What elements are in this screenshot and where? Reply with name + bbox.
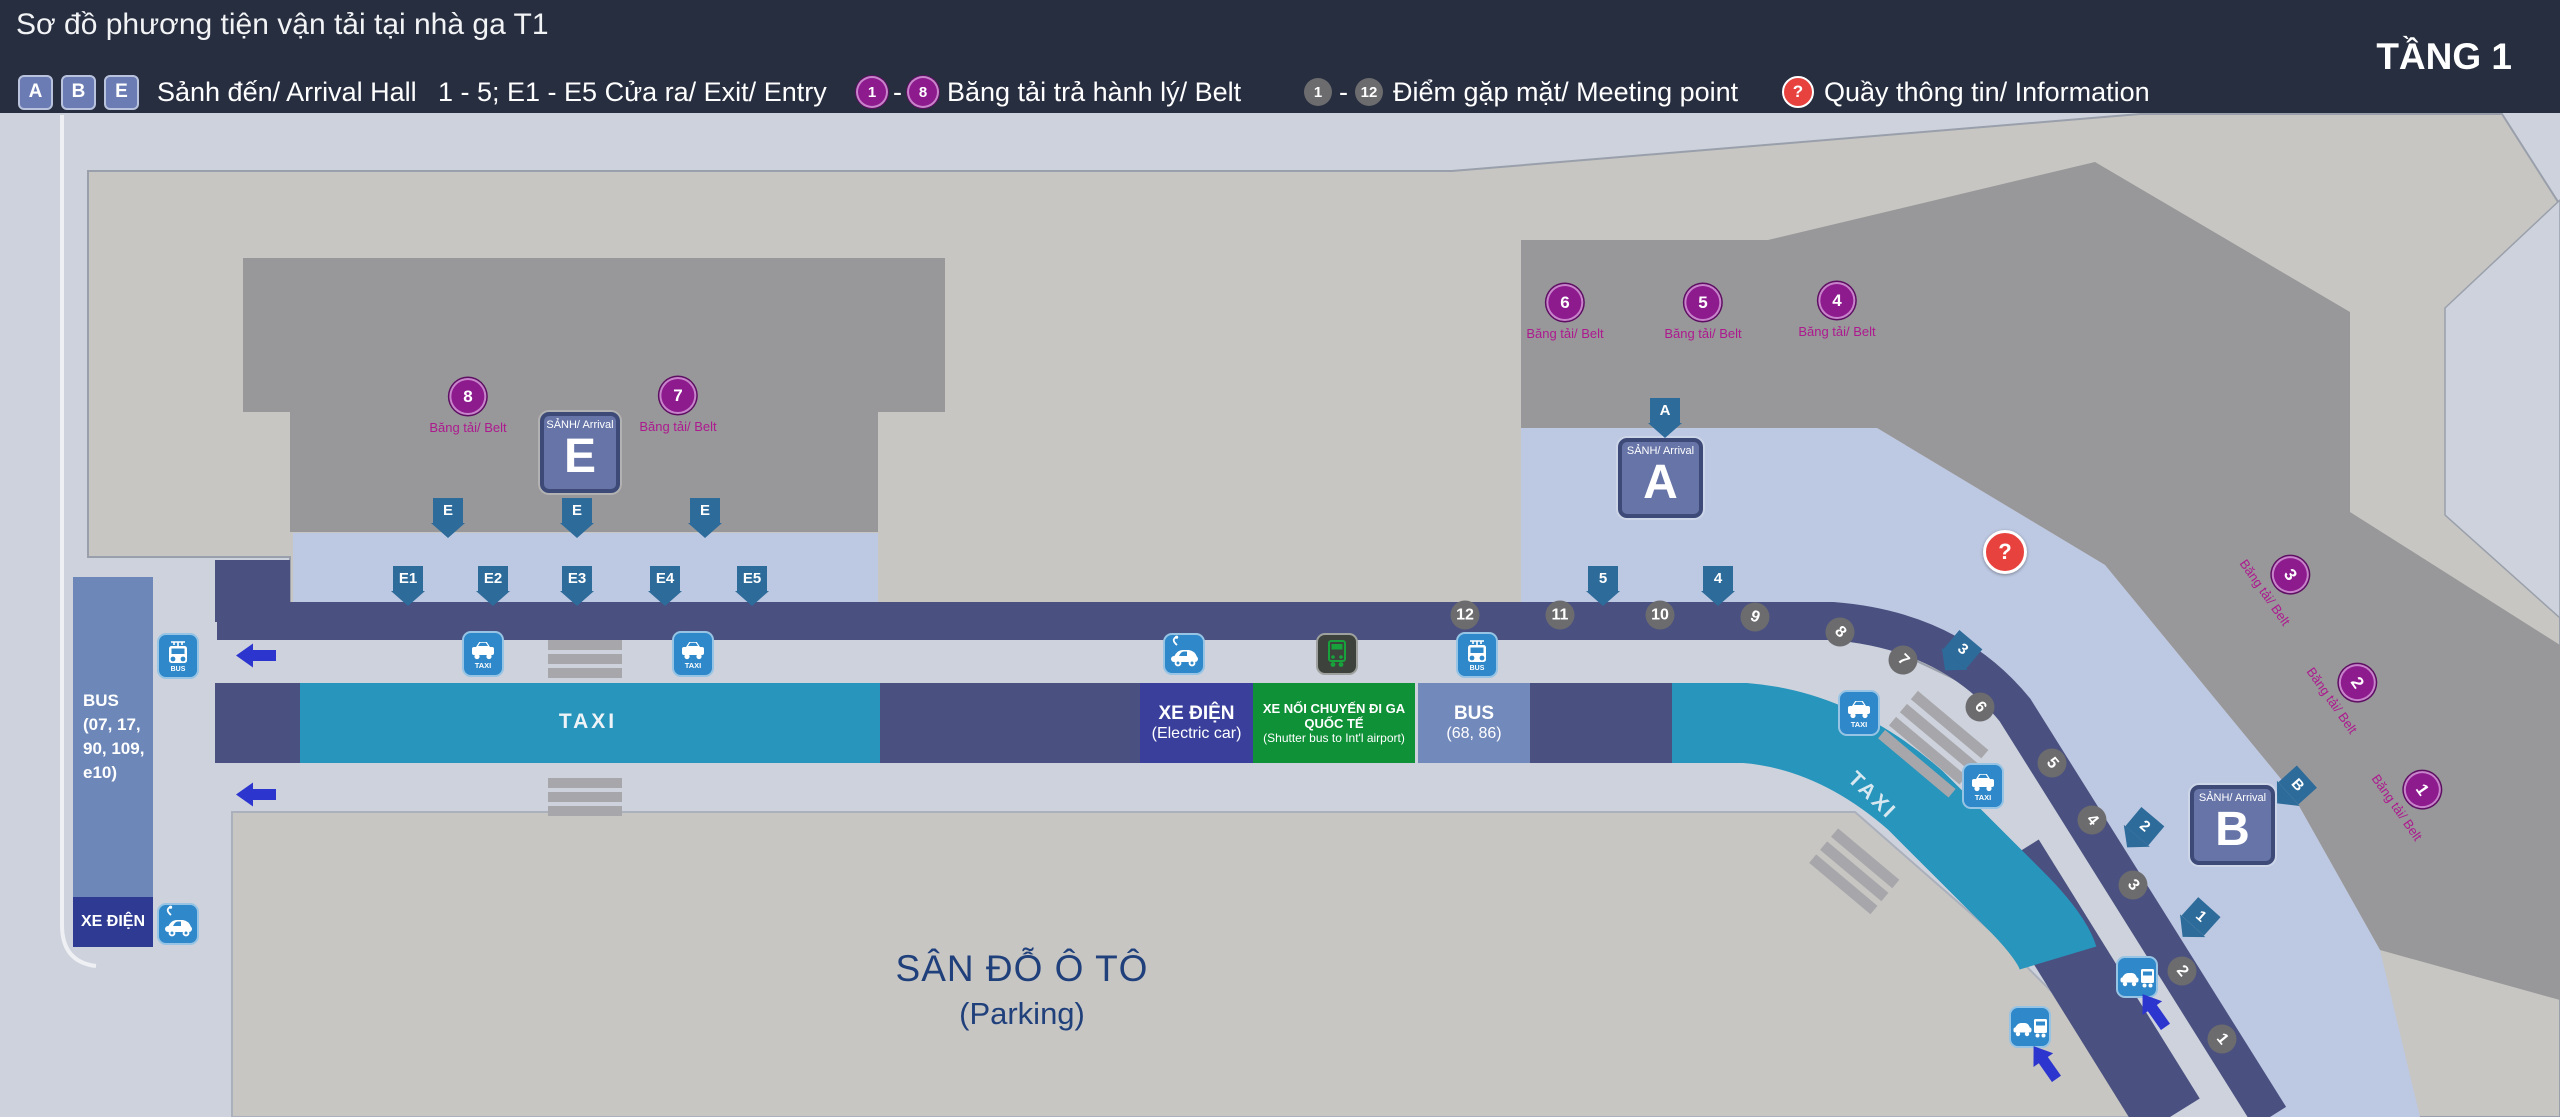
arrival-hall-box-e: SẢNH/ Arrival E [540, 412, 620, 493]
electric-car-stop-subtitle: (Electric car) [1152, 725, 1242, 743]
hall-badge-b: B [61, 75, 96, 110]
meeting-point-10: 10 [1646, 601, 1675, 630]
direction-arrow [236, 782, 276, 813]
meeting-point-number: 12 [1456, 606, 1474, 624]
exit-arrow-e: E [560, 498, 594, 538]
legend-belts: 1 - 8 Băng tải trả hành lý/ Belt [858, 73, 1241, 111]
meeting-point-3: 3 [2119, 871, 2148, 900]
electric-car-icon [1165, 635, 1203, 673]
legend-exits: 1 - 5; E1 - E5 Cửa ra/ Exit/ Entry [438, 73, 827, 111]
car-and-bus-icon [2011, 1012, 2049, 1042]
exit-label: 4 [1703, 566, 1733, 591]
arrival-hall-letter: E [564, 431, 596, 483]
belt-label: Băng tải/ Belt [1526, 326, 1603, 341]
legend-information: ? Quầy thông tin/ Information [1782, 73, 2150, 111]
svg-text:TAXI: TAXI [1851, 720, 1868, 729]
meeting-point-6: 6 [1966, 693, 1995, 722]
ecar-stop-icon [157, 903, 199, 945]
belt-legend-end-icon: 8 [909, 78, 937, 106]
bus-bay-line: (07, 17, [83, 713, 153, 737]
exit-label: E [690, 498, 720, 523]
svg-text:TAXI: TAXI [1975, 793, 1992, 802]
electric-car-bay: XE ĐIỆN [73, 897, 153, 947]
bus-stop-title: BUS [1454, 703, 1494, 725]
direction-arrow [236, 643, 276, 674]
legend-exits-label: 1 - 5; E1 - E5 Cửa ra/ Exit/ Entry [438, 77, 827, 108]
taxi-stop-icon: TAXI [1962, 763, 2004, 809]
legend-dash: - [1339, 77, 1348, 108]
taxi-icon: TAXI [465, 635, 501, 673]
exit-arrowhead-icon [476, 591, 510, 606]
meeting-point-2: 2 [2168, 957, 2197, 986]
arrival-hall-letter: A [1643, 457, 1678, 509]
exit-arrow-e: E [431, 498, 465, 538]
baggage-belt-8: 8 Băng tải/ Belt [429, 380, 506, 435]
bus-stop-icon: BUS [1456, 632, 1498, 678]
exit-arrowhead-icon [560, 591, 594, 606]
crosswalk-upper [548, 640, 622, 678]
baggage-belt-7: 7 Băng tải/ Belt [639, 379, 716, 434]
legend-arrival-hall: A B E Sảnh đến/ Arrival Hall [18, 73, 417, 111]
exit-arrowhead-icon [1586, 591, 1620, 606]
electric-car-icon [159, 905, 197, 943]
parking-label-en: (Parking) [896, 996, 1149, 1032]
meeting-point-number: 6 [1970, 698, 1990, 716]
lane-navy-3 [1530, 683, 1672, 763]
belt-legend-start-icon: 1 [858, 78, 886, 106]
bus-bay: BUS (07, 17, 90, 109, e10) [73, 577, 153, 897]
legend-meeting-label: Điểm gặp mặt/ Meeting point [1393, 77, 1738, 108]
exit-label: E [433, 498, 463, 523]
exit-label: E4 [650, 566, 680, 591]
taxi-icon: TAXI [1965, 767, 2001, 805]
parking-label: SÂN ĐỖ Ô TÔ (Parking) [896, 948, 1149, 1032]
meeting-point-4: 4 [2078, 806, 2107, 835]
belt-number: 6 [1548, 286, 1581, 319]
exit-label: E2 [478, 566, 508, 591]
lane-navy-2 [880, 683, 1142, 763]
exit-arrowhead-icon [560, 523, 594, 538]
taxi-icon: TAXI [1841, 694, 1877, 732]
airport-transport-map: BUS (07, 17, 90, 109, e10) XE ĐIỆN XE ĐI… [0, 0, 2560, 1117]
meeting-point-number: 4 [2082, 811, 2102, 829]
taxi-stop-icon: TAXI [1838, 690, 1880, 736]
direction-arrow-icon [236, 643, 276, 669]
electric-car-bay-label: XE ĐIỆN [81, 913, 145, 931]
exit-arrowhead-icon [735, 591, 769, 606]
parking-area [232, 812, 2132, 1117]
exit-arrow-e1: E1 [391, 566, 425, 606]
belt-number: 8 [451, 380, 484, 413]
hall-badge-a: A [18, 75, 53, 110]
information-legend-icon: ? [1782, 76, 1814, 108]
meeting-point-12: 12 [1451, 601, 1480, 630]
exit-arrow-a: A [1648, 398, 1682, 438]
meeting-point-number: 10 [1651, 606, 1669, 624]
legend-information-label: Quầy thông tin/ Information [1824, 77, 2150, 108]
exit-arrow-e3: E3 [560, 566, 594, 606]
exit-arrowhead-icon [431, 523, 465, 538]
exit-arrowhead-icon [1648, 423, 1682, 438]
bus-icon: BUS [1459, 637, 1495, 673]
shuttle-stop-icon [1316, 633, 1358, 675]
exit-label: E1 [393, 566, 423, 591]
meeting-point-11: 11 [1546, 601, 1575, 630]
shuttle-bus-stop: XE NỐI CHUYẾN ĐI GA QUỐC TẾ (Shutter bus… [1253, 683, 1415, 763]
arrival-hall-box-a: SẢNH/ Arrival A [1618, 438, 1703, 518]
page-title: Sơ đồ phương tiện vận tải tại nhà ga T1 [16, 8, 549, 42]
parking-label-vi: SÂN ĐỖ Ô TÔ [896, 948, 1149, 990]
exit-arrow-e: E [688, 498, 722, 538]
baggage-belt-5: 5 Băng tải/ Belt [1664, 286, 1741, 341]
arrival-hall-letter: B [2215, 804, 2250, 856]
taxi-icon: TAXI [675, 635, 711, 673]
meeting-point-8: 8 [1826, 618, 1855, 647]
exit-label: E3 [562, 566, 592, 591]
crosswalk-lower [548, 778, 622, 816]
map-base-layer [0, 0, 2560, 1117]
information-point: ? [1983, 530, 2027, 574]
taxi-stop-icon: TAXI [462, 631, 504, 677]
belt-number: 5 [1686, 286, 1719, 319]
meeting-point-number: 3 [2123, 876, 2143, 894]
exit-label: E [562, 498, 592, 523]
taxi-stop-icon: TAXI [672, 631, 714, 677]
exit-arrow-4: 4 [1701, 566, 1735, 606]
meeting-point-number: 9 [1748, 607, 1763, 627]
meeting-point-number: 7 [1893, 650, 1912, 669]
svg-text:BUS: BUS [1470, 665, 1485, 672]
exit-arrow-e2: E2 [476, 566, 510, 606]
meeting-point-7: 7 [1889, 646, 1918, 675]
exit-label: E5 [737, 566, 767, 591]
meeting-point-number: 8 [1830, 622, 1849, 641]
exit-label: 5 [1588, 566, 1618, 591]
exit-arrowhead-icon [1701, 591, 1735, 606]
bus-bay-line: BUS [83, 689, 153, 713]
meeting-point-number: 1 [2212, 1030, 2232, 1048]
electric-car-stop: XE ĐIỆN (Electric car) [1140, 683, 1253, 763]
belt-label: Băng tải/ Belt [1664, 326, 1741, 341]
belt-number: 7 [661, 379, 694, 412]
floor-label: TẦNG 1 [2376, 36, 2512, 78]
bus-stop-icon: BUS [157, 633, 199, 679]
shuttle-bus-icon [1319, 636, 1355, 672]
exit-label: A [1650, 398, 1680, 423]
belt-label: Băng tải/ Belt [429, 420, 506, 435]
bus-stop-68-86: BUS (68, 86) [1418, 683, 1530, 763]
bus-stop-subtitle: (68, 86) [1446, 725, 1501, 743]
meeting-point-number: 11 [1552, 606, 1569, 624]
exit-arrow-e5: E5 [735, 566, 769, 606]
svg-text:TAXI: TAXI [685, 661, 702, 670]
meeting-point-number: 2 [2172, 962, 2192, 980]
shuttle-bus-stop-title: XE NỐI CHUYẾN ĐI GA QUỐC TẾ [1253, 701, 1415, 731]
lane-navy-1 [215, 683, 302, 763]
header-bar: Sơ đồ phương tiện vận tải tại nhà ga T1 … [0, 0, 2560, 113]
hall-badge-e: E [104, 75, 139, 110]
bus-icon: BUS [160, 638, 196, 674]
exit-arrowhead-icon [648, 591, 682, 606]
belt-number: 4 [1820, 284, 1853, 317]
legend-dash: - [893, 77, 902, 108]
map-canvas: BUS (07, 17, 90, 109, e10) XE ĐIỆN XE ĐI… [0, 0, 2560, 1117]
meeting-legend-end-icon: 12 [1355, 78, 1383, 106]
taxi-lane-label: TAXI [559, 710, 617, 734]
legend-belts-label: Băng tải trả hành lý/ Belt [947, 77, 1241, 108]
baggage-belt-4: 4 Băng tải/ Belt [1798, 284, 1875, 339]
meeting-point-9: 9 [1741, 603, 1770, 632]
exit-arrowhead-icon [688, 523, 722, 538]
baggage-belt-6: 6 Băng tải/ Belt [1526, 286, 1603, 341]
meeting-legend-start-icon: 1 [1304, 78, 1332, 106]
belt-label: Băng tải/ Belt [639, 419, 716, 434]
direction-arrow-icon [236, 782, 276, 808]
exit-arrow-5: 5 [1586, 566, 1620, 606]
belt-label: Băng tải/ Belt [1798, 324, 1875, 339]
exit-arrow-e4: E4 [648, 566, 682, 606]
electric-car-stop-title: XE ĐIỆN [1158, 703, 1234, 725]
ecar-stop-icon [1163, 633, 1205, 675]
svg-text:BUS: BUS [171, 666, 186, 673]
meeting-point-1: 1 [2208, 1025, 2237, 1054]
meeting-point-5: 5 [2038, 749, 2067, 778]
arrival-hall-box-b: SẢNH/ Arrival B [2190, 785, 2275, 865]
shuttle-bus-stop-subtitle: (Shutter bus to Int'l airport) [1263, 731, 1405, 745]
svg-text:TAXI: TAXI [475, 661, 492, 670]
meeting-point-number: 5 [2042, 754, 2062, 772]
legend-meeting-points: 1 - 12 Điểm gặp mặt/ Meeting point [1304, 73, 1738, 111]
bus-bay-line: 90, 109, [83, 737, 153, 761]
legend-arrival-hall-label: Sảnh đến/ Arrival Hall [157, 77, 417, 108]
bus-bay-line: e10) [83, 761, 153, 785]
exit-arrowhead-icon [391, 591, 425, 606]
